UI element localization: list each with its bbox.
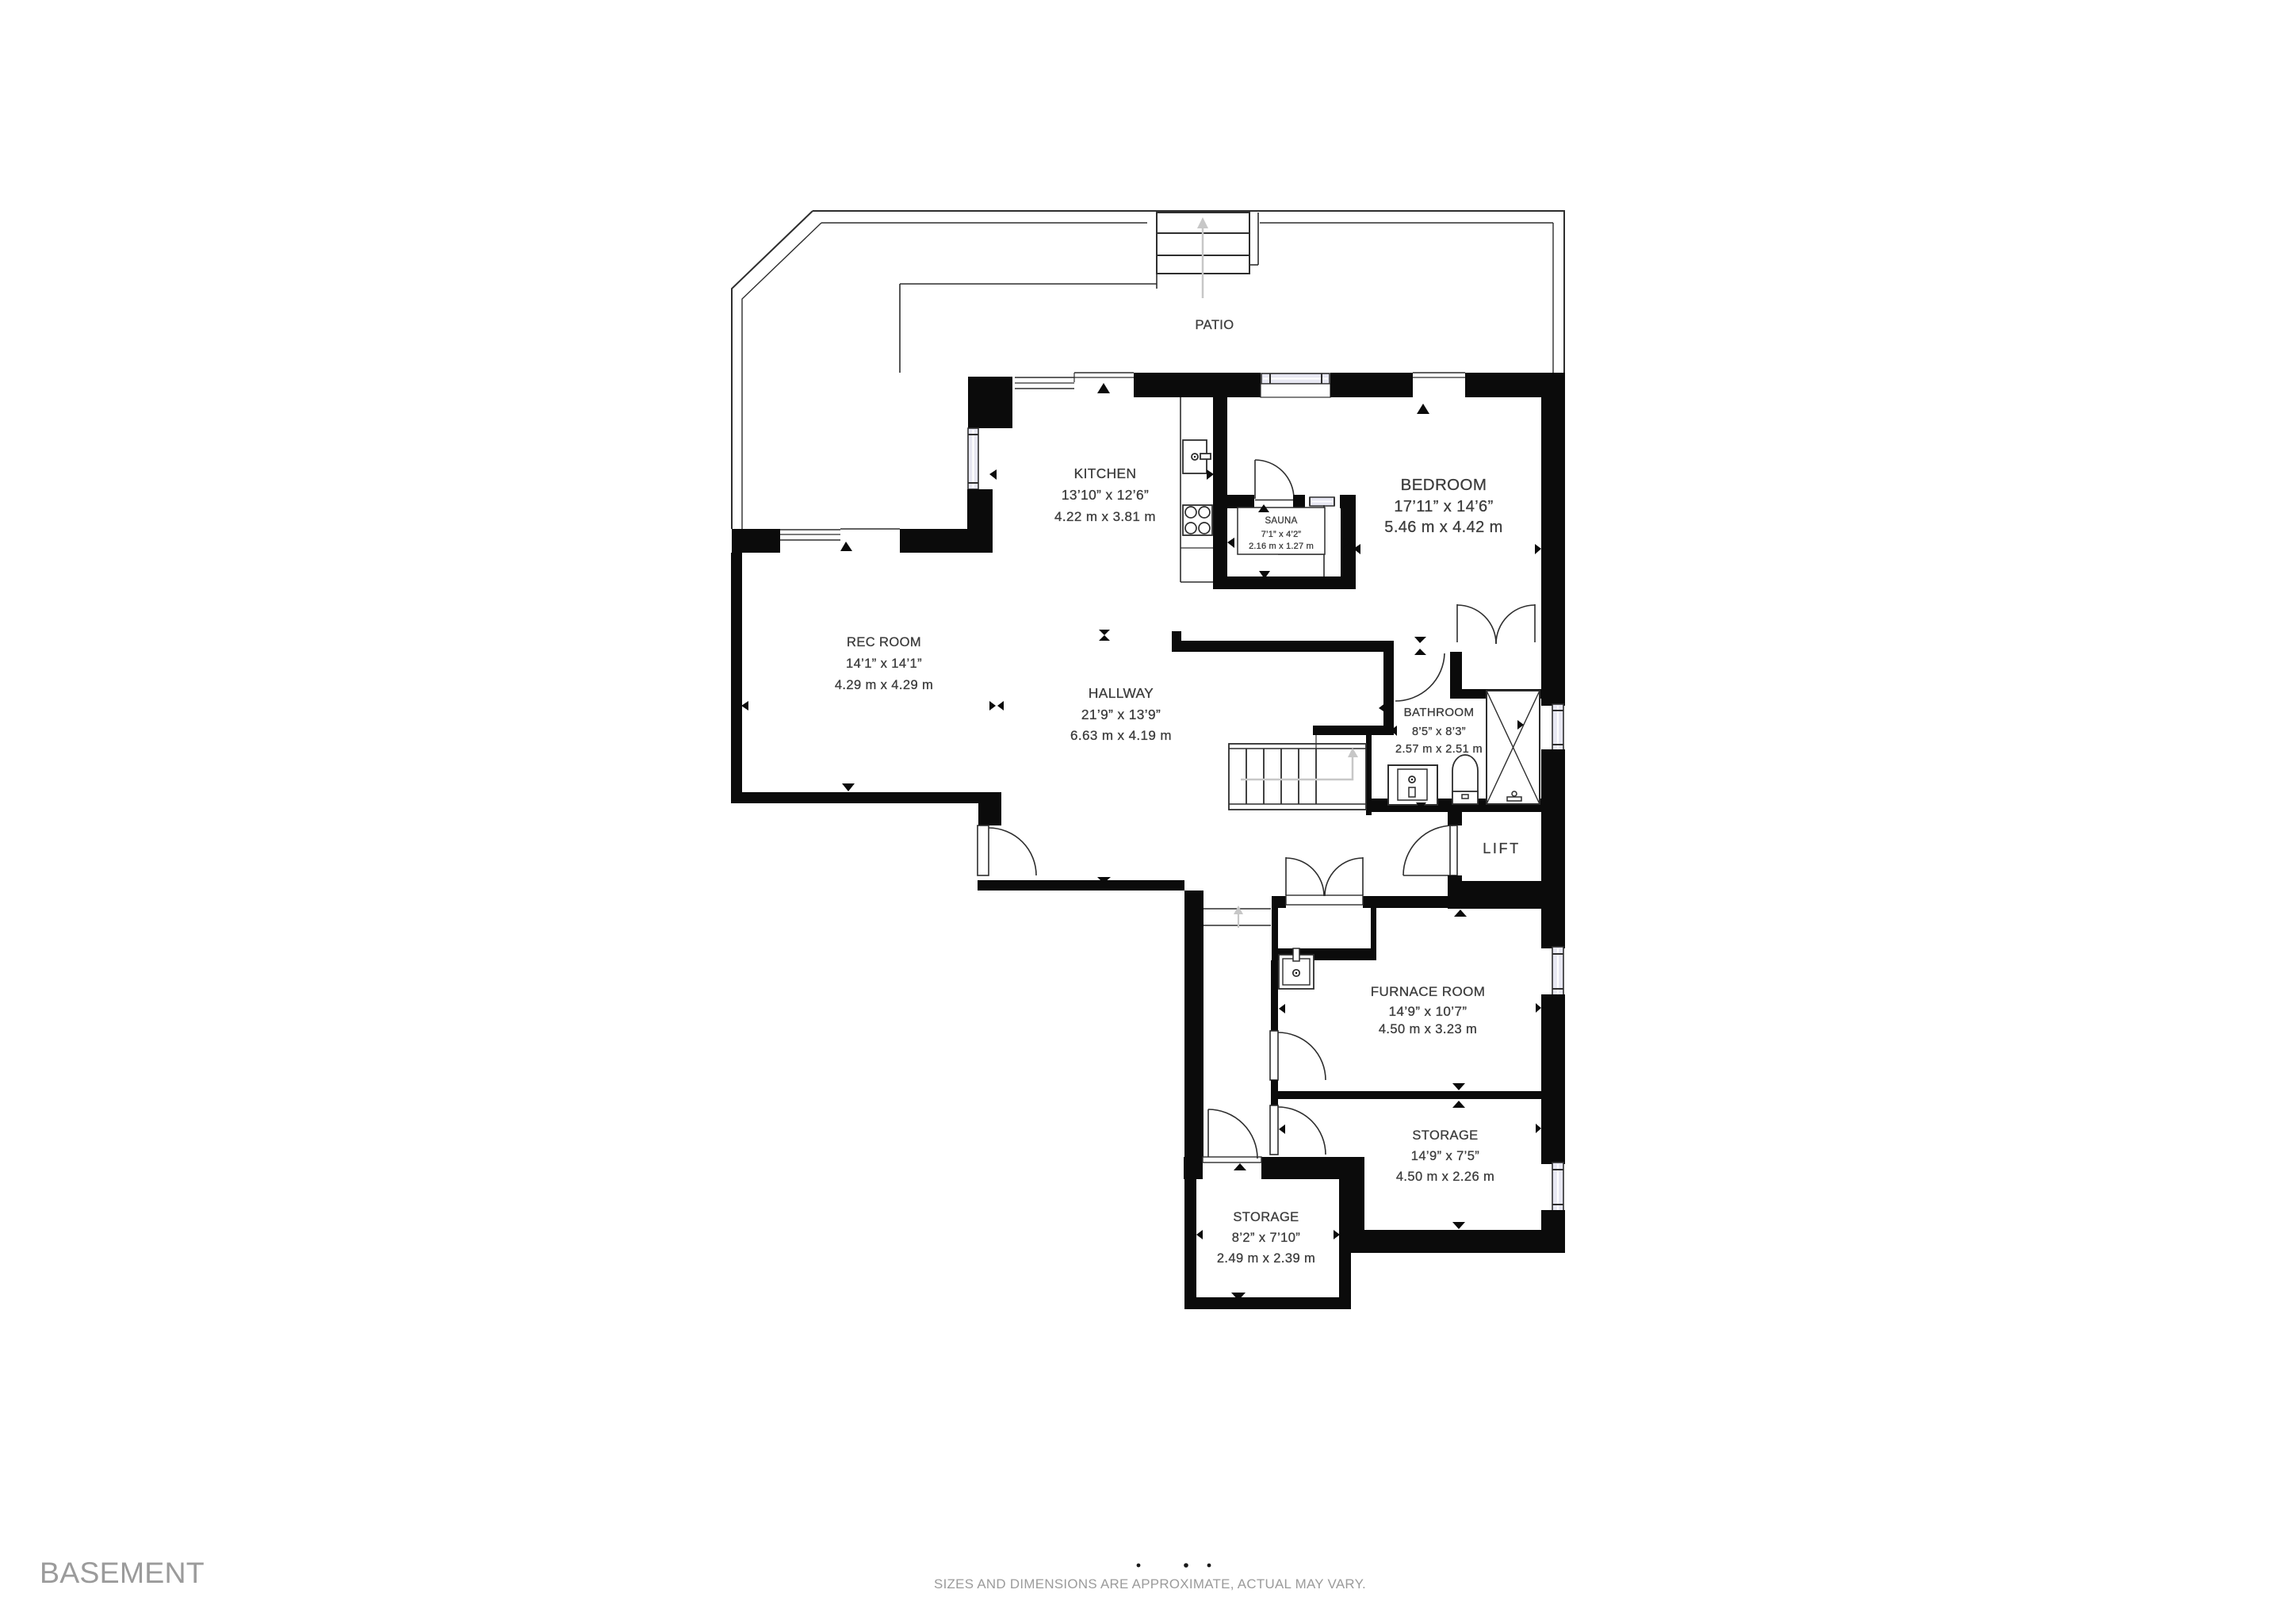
svg-text:BATHROOM: BATHROOM: [1404, 706, 1475, 719]
svg-text:FURNACE ROOM: FURNACE ROOM: [1371, 984, 1486, 999]
svg-text:6.63 m x 4.19 m: 6.63 m x 4.19 m: [1070, 728, 1172, 743]
svg-text:21’9” x 13’9”: 21’9” x 13’9”: [1081, 707, 1161, 722]
svg-text:PATIO: PATIO: [1195, 318, 1234, 332]
svg-text:LIFT: LIFT: [1483, 841, 1520, 856]
svg-text:SAUNA: SAUNA: [1265, 516, 1297, 526]
svg-text:HALLWAY: HALLWAY: [1089, 685, 1154, 701]
svg-text:SIZES AND DIMENSIONS ARE APPRO: SIZES AND DIMENSIONS ARE APPROXIMATE, AC…: [934, 1576, 1366, 1591]
svg-text:KITCHEN: KITCHEN: [1074, 465, 1137, 481]
svg-text:BEDROOM: BEDROOM: [1401, 476, 1487, 494]
svg-text:2.57 m x 2.51 m: 2.57 m x 2.51 m: [1395, 743, 1483, 756]
svg-text:7’1” x 4’2”: 7’1” x 4’2”: [1261, 530, 1302, 539]
svg-text:8’5” x 8’3”: 8’5” x 8’3”: [1412, 726, 1466, 738]
svg-text:BASEMENT: BASEMENT: [40, 1556, 205, 1589]
svg-text:14’9” x 10’7”: 14’9” x 10’7”: [1389, 1004, 1468, 1019]
svg-text:STORAGE: STORAGE: [1233, 1210, 1299, 1224]
svg-text:4.29 m x 4.29 m: 4.29 m x 4.29 m: [835, 678, 933, 692]
svg-text:2.49 m x 2.39 m: 2.49 m x 2.39 m: [1217, 1251, 1315, 1266]
svg-text:14’9” x 7’5”: 14’9” x 7’5”: [1411, 1149, 1479, 1163]
svg-text:2.16 m x 1.27 m: 2.16 m x 1.27 m: [1249, 542, 1314, 551]
svg-text:13’10” x 12’6”: 13’10” x 12’6”: [1062, 487, 1149, 503]
svg-text:17’11” x 14’6”: 17’11” x 14’6”: [1394, 498, 1493, 515]
svg-text:REC ROOM: REC ROOM: [847, 635, 921, 649]
svg-text:5.46 m x 4.42 m: 5.46 m x 4.42 m: [1384, 519, 1502, 536]
svg-text:4.50 m x 3.23 m: 4.50 m x 3.23 m: [1379, 1022, 1477, 1036]
svg-text:8’2” x 7’10”: 8’2” x 7’10”: [1232, 1231, 1300, 1245]
svg-text:STORAGE: STORAGE: [1412, 1128, 1478, 1143]
svg-text:4.22 m x 3.81 m: 4.22 m x 3.81 m: [1054, 509, 1156, 524]
svg-text:4.50 m x 2.26 m: 4.50 m x 2.26 m: [1396, 1170, 1494, 1184]
svg-text:14’1” x 14’1”: 14’1” x 14’1”: [846, 657, 922, 671]
